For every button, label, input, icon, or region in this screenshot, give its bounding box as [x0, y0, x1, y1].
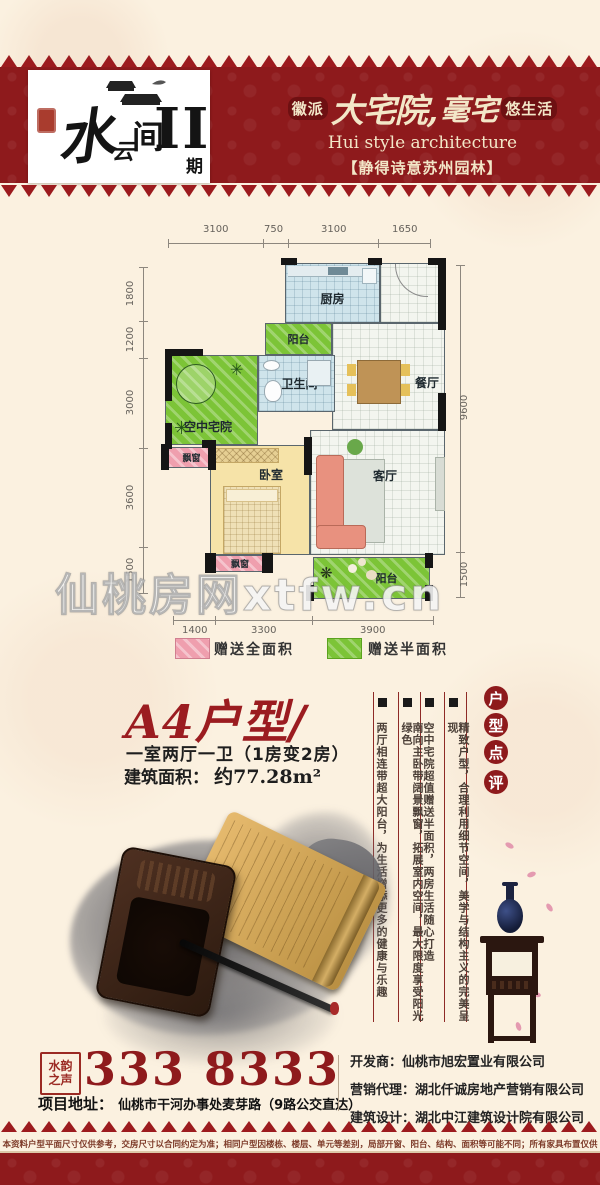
project-address: 项目地址： 仙桃市干河办事处麦芽路（9路公交直达）: [38, 1093, 361, 1114]
legend-swatch-half-area: [327, 638, 360, 657]
sound-seal: 水韵 之声: [40, 1052, 81, 1095]
courtyard-gazebo: [176, 364, 216, 404]
room-balcony-mid-label: 阳台: [288, 331, 310, 347]
room-bay-window-upper-label: 飘窗: [182, 451, 200, 464]
legend-swatch-pink: [175, 638, 210, 659]
dim-left-4: 3600: [125, 485, 136, 510]
tagline-cn: 【静得诗意苏州园林】: [270, 157, 575, 178]
dim-bottom-3: 3900: [360, 625, 385, 636]
room-entry: [380, 263, 445, 323]
plant-icon: ✳: [230, 360, 243, 379]
triangle-border-top: [0, 53, 600, 67]
company-row: 营销代理：湖北仟诚房地产营销有限公司: [350, 1079, 580, 1098]
review-divider: [398, 692, 399, 1022]
room-kitchen: 厨房: [285, 263, 380, 323]
kitchen-stove: [328, 267, 348, 275]
room-bedroom-label: 卧室: [259, 466, 283, 483]
room-bathroom: 卫生间: [258, 355, 335, 412]
dining-chair: [401, 384, 410, 396]
triangle-border-bottom: [0, 183, 600, 197]
entry-door-arc: [395, 264, 428, 297]
phone-number: 333 8333: [84, 1042, 340, 1096]
dim-left-3: 3000: [125, 390, 136, 415]
bedroom-wardrobe: [215, 448, 279, 463]
unit-area-label: 建筑面积：: [124, 768, 209, 788]
dim-top-4: 1650: [392, 224, 417, 235]
logo-char-shui: 水: [52, 87, 118, 177]
dim-right-2: 1500: [459, 562, 470, 587]
dim-top-3: 3100: [321, 224, 346, 235]
seal-line1: 水韵: [48, 1060, 72, 1074]
company-row: 开发商：仙桃市旭宏置业有限公司: [350, 1051, 580, 1070]
review-title-char-1: 户: [484, 686, 508, 710]
unit-area-value: 约77.28m²: [214, 766, 321, 788]
bathroom-toilet: [264, 380, 282, 402]
company-name: 湖北仟诚房地产营销有限公司: [415, 1083, 584, 1098]
logo-box: 水 云 间 II 期: [28, 70, 210, 183]
floorplan: 3100 750 3100 1650: [0, 197, 600, 687]
petal: [526, 871, 536, 879]
address-label: 项目地址：: [38, 1095, 113, 1113]
triangle-pattern-down-icon: [0, 184, 600, 198]
dim-bottom-2: 3300: [251, 625, 276, 636]
legend-label-full-area: 赠送全面积: [214, 639, 294, 659]
room-dining: 餐厅: [332, 323, 445, 430]
logo-char-yun: 云: [112, 134, 134, 166]
company-list: 开发商：仙桃市旭宏置业有限公司 营销代理：湖北仟诚房地产营销有限公司 建筑设计：…: [350, 1051, 580, 1126]
review-title-char-2: 型: [484, 713, 508, 737]
poster: 水 云 间 II 期 徽派 大宅院, 毫宅 悠生活 Hui style arch…: [0, 0, 600, 1185]
review-divider: [444, 692, 445, 1022]
stand-crossbar: [488, 1036, 536, 1041]
room-balcony-mid: 阳台: [265, 323, 332, 355]
bathroom-sink: [263, 360, 280, 371]
bathroom-shower: [307, 360, 331, 386]
triangle-pattern-up-icon: [0, 54, 600, 68]
review-point-3: 南向主卧带阔景飘窗，拓展室内空间，最大限度享受阳光绿色: [401, 722, 423, 1022]
dim-top-1: 3100: [203, 224, 228, 235]
vase-body: [497, 899, 523, 933]
contact-divider: [338, 1055, 339, 1111]
tagline-en: Hui style architecture: [270, 133, 575, 153]
dining-chair: [347, 364, 356, 376]
kitchen-fridge: [362, 268, 377, 284]
logo-phase-suffix: 期: [186, 152, 203, 177]
brush-tassel: [330, 1002, 339, 1015]
address-value: 仙桃市干河办事处麦芽路（9路公交直达）: [118, 1098, 361, 1113]
tagline-badge-right: 悠生活: [501, 97, 557, 120]
dim-left-1: 1800: [125, 281, 136, 306]
dim-left-2: 1200: [125, 327, 136, 352]
stand-top: [480, 936, 544, 943]
dining-chair: [347, 384, 356, 396]
petal: [515, 1021, 523, 1031]
dim-bottom-1: 1400: [182, 625, 207, 636]
legend-label-half-area: 赠送半面积: [368, 639, 448, 659]
petal: [545, 902, 554, 912]
site-watermark: 仙桃房网xtfw.cn: [55, 559, 445, 623]
tagline-script-b: 毫宅: [440, 87, 498, 129]
dim-top-2: 750: [264, 224, 283, 235]
stand-panel: [492, 952, 532, 976]
room-bedroom: 卧室: [210, 445, 310, 555]
room-courtyard-label: 空中宅院: [184, 418, 232, 435]
tagline-badge-left: 徽派: [288, 97, 328, 120]
square-bullet-icon: [378, 698, 387, 707]
dining-chair: [401, 364, 410, 376]
stand-carving: [492, 981, 532, 989]
room-living-label: 客厅: [373, 467, 397, 484]
square-bullet-icon: [403, 698, 412, 707]
stand-body: [486, 943, 538, 995]
square-bullet-icon: [425, 698, 434, 707]
company-name: 仙桃市旭宏置业有限公司: [402, 1055, 545, 1070]
room-dining-label: 餐厅: [415, 374, 439, 391]
legend-swatch-full-area: [175, 638, 208, 657]
room-living: 客厅: [310, 430, 445, 555]
footer-band: [0, 1153, 600, 1185]
tagline-line1: 徽派 大宅院, 毫宅 悠生活: [270, 84, 575, 132]
review-point-1: 精致户型，合理利用细节空间，美学与结构主义的完美呈现: [447, 722, 469, 1022]
dining-table: [357, 360, 401, 404]
triangle-pattern-up-footer-icon: [0, 1120, 600, 1133]
room-kitchen-label: 厨房: [320, 290, 344, 307]
review-point-2: 空中宅院超值赠送半面积，两房生活随心打造: [423, 722, 434, 1022]
unit-area: 建筑面积： 约77.28m²: [124, 762, 321, 789]
dim-right-1: 9600: [459, 395, 470, 420]
triangle-border-footer: [0, 1118, 600, 1131]
header-tagline: 徽派 大宅院, 毫宅 悠生活 Hui style architecture 【静…: [270, 84, 575, 179]
seal-line2: 之声: [48, 1074, 72, 1088]
legend-swatch-green: [327, 638, 362, 659]
living-plant: [347, 439, 363, 455]
inkstone-carving: [136, 859, 216, 903]
company-label: 开发商：: [350, 1055, 402, 1070]
petal: [504, 841, 514, 850]
logo-name: 水 云 间: [56, 86, 166, 176]
square-bullet-icon: [449, 698, 458, 707]
room-courtyard: ✳ ✳ 空中宅院: [165, 355, 258, 445]
living-tv-cabinet: [435, 457, 445, 511]
tagline-script-a: 大宅院,: [331, 84, 438, 132]
review-title-char-4: 评: [484, 770, 508, 794]
bedroom-bed: [223, 486, 281, 554]
review-title-char-3: 点: [484, 740, 508, 764]
bed-pillow: [226, 489, 278, 502]
living-sofa-chaise: [316, 525, 366, 549]
company-label: 营销代理：: [350, 1083, 415, 1098]
